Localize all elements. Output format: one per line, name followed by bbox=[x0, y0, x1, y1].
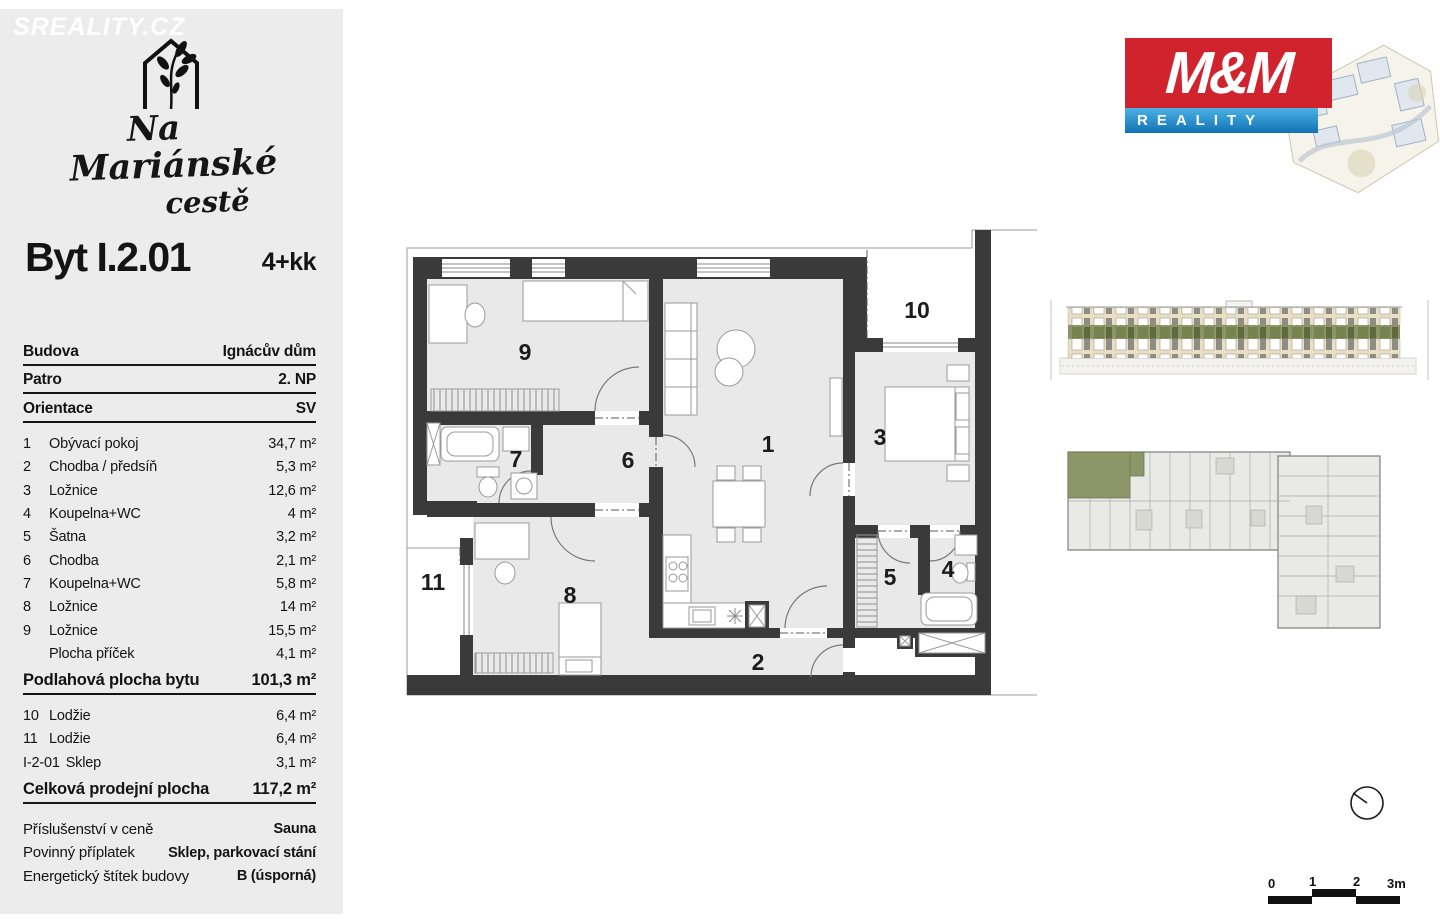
unit-header: Byt I.2.01 4+kk bbox=[25, 237, 316, 278]
bed-icon bbox=[523, 281, 648, 321]
room-name: Ložnice bbox=[49, 599, 280, 615]
mm-reality-logo: M&M REALITY bbox=[1125, 38, 1332, 133]
room-number: 6 bbox=[23, 553, 49, 569]
reality-logo-text: REALITY bbox=[1125, 112, 1264, 129]
detail-row: Energetický štítek budovyB (úsporná) bbox=[23, 865, 316, 889]
info-sidebar: SREALITY.CZ Na Mariánské cestě Byt I.2.0… bbox=[0, 9, 343, 914]
room-area: 5,3 m² bbox=[276, 459, 316, 475]
scale-tick-0: 0 bbox=[1268, 876, 1275, 891]
room-area: 2,1 m² bbox=[276, 553, 316, 569]
mm-logo-blue-bar: REALITY bbox=[1125, 108, 1318, 133]
info-label: Patro bbox=[23, 371, 62, 389]
project-logo-house-icon bbox=[129, 33, 213, 113]
scale-bar: 0 1 2 3m bbox=[1260, 874, 1412, 914]
room-label-11: 11 bbox=[421, 569, 446, 595]
info-row-building: Budova Ignácův dům bbox=[23, 337, 316, 366]
room-label-2: 2 bbox=[752, 649, 765, 675]
sink-icon bbox=[955, 535, 977, 555]
room-area: 5,8 m² bbox=[276, 576, 316, 592]
detail-row: Příslušenství v ceněSauna bbox=[23, 817, 316, 841]
bathtub-icon bbox=[441, 427, 499, 461]
total-label: Celková prodejní plocha bbox=[23, 780, 209, 799]
room-name: Ložnice bbox=[49, 623, 268, 639]
scale-tick-2: 2 bbox=[1353, 874, 1360, 889]
shaft-icon bbox=[897, 633, 913, 649]
tv-bench-icon bbox=[830, 378, 842, 436]
room-label-8: 8 bbox=[564, 582, 577, 608]
room-name: Plocha příček bbox=[49, 646, 276, 662]
total-row: Celková prodejní plocha 117,2 m² bbox=[23, 777, 316, 804]
room-name: Obývací pokoj bbox=[49, 436, 268, 452]
room-area: 4 m² bbox=[288, 506, 316, 522]
detail-label: Povinný příplatek bbox=[23, 844, 135, 861]
room-number: 7 bbox=[23, 576, 49, 592]
room-number: 8 bbox=[23, 599, 49, 615]
room-name: Koupelna+WC bbox=[49, 506, 288, 522]
info-row-floor: Patro 2. NP bbox=[23, 366, 316, 395]
room-list: 1Obývací pokoj34,7 m² 2Chodba / předsíň5… bbox=[23, 433, 316, 666]
room-number: 3 bbox=[23, 483, 49, 499]
room-name: Chodba / předsíň bbox=[49, 459, 276, 475]
room-row: 1Obývací pokoj34,7 m² bbox=[23, 433, 316, 456]
extra-row: 10Lodžie6,4 m² bbox=[23, 704, 316, 727]
unit-title: Byt I.2.01 bbox=[25, 237, 190, 278]
detail-value: Sklep, parkovací stání bbox=[168, 845, 316, 861]
room-label-10: 10 bbox=[904, 297, 930, 323]
info-value: SV bbox=[296, 400, 316, 418]
subtotal-value: 101,3 m² bbox=[252, 671, 316, 690]
detail-list: Příslušenství v ceněSauna Povinný přípla… bbox=[23, 817, 316, 888]
room-area: 6,4 m² bbox=[276, 708, 316, 724]
room-name: Ložnice bbox=[49, 483, 268, 499]
room-row: 8Ložnice14 m² bbox=[23, 596, 316, 619]
room-name: Sklep bbox=[66, 755, 276, 771]
info-row-orientation: Orientace SV bbox=[23, 394, 316, 423]
room-area: 4,1 m² bbox=[276, 646, 316, 662]
subtotal-row: Podlahová plocha bytu 101,3 m² bbox=[23, 668, 316, 695]
room-number: 10 bbox=[23, 708, 49, 724]
room-label-3: 3 bbox=[874, 424, 887, 450]
room-area: 14 m² bbox=[280, 599, 316, 615]
scale-tick-1: 1 bbox=[1309, 874, 1316, 889]
room-name: Šatna bbox=[49, 529, 276, 545]
room-number: 9 bbox=[23, 623, 49, 639]
room-label-7: 7 bbox=[510, 446, 523, 472]
room-number: 11 bbox=[23, 731, 49, 747]
info-value: 2. NP bbox=[278, 371, 316, 389]
shaft-icon bbox=[427, 423, 440, 465]
room-area: 3,2 m² bbox=[276, 529, 316, 545]
extra-row: I-2-01Sklep3,1 m² bbox=[23, 751, 316, 774]
room-name: Koupelna+WC bbox=[49, 576, 276, 592]
overview-floorplan bbox=[1066, 446, 1432, 668]
shelving-hatch bbox=[857, 535, 877, 627]
room-name: Lodžie bbox=[49, 731, 276, 747]
room-label-4: 4 bbox=[942, 556, 955, 582]
washing-machine-icon bbox=[511, 473, 537, 499]
sofa-icon bbox=[665, 303, 697, 415]
detail-label: Příslušenství v ceně bbox=[23, 821, 153, 838]
bathtub-icon bbox=[921, 593, 977, 625]
scale-tick-3m: 3m bbox=[1387, 876, 1406, 891]
room-area: 6,4 m² bbox=[276, 731, 316, 747]
room-name: Chodba bbox=[49, 553, 276, 569]
wardrobe-hatch bbox=[431, 389, 559, 411]
detail-row: Povinný příplatekSklep, parkovací stání bbox=[23, 841, 316, 865]
detail-label: Energetický štítek budovy bbox=[23, 868, 189, 885]
apartment-floorplan: 1 2 3 4 5 6 7 8 9 10 11 bbox=[383, 205, 1043, 710]
room-label-6: 6 bbox=[622, 447, 635, 473]
room-number: I-2-01 bbox=[23, 755, 60, 771]
shaft-icon bbox=[745, 601, 769, 631]
room-number: 2 bbox=[23, 459, 49, 475]
room-row: 4Koupelna+WC4 m² bbox=[23, 502, 316, 525]
unit-data-table: Budova Ignácův dům Patro 2. NP Orientace… bbox=[23, 337, 316, 888]
room-label-1: 1 bbox=[762, 431, 775, 457]
unit-layout: 4+kk bbox=[262, 250, 316, 275]
room-row: 2Chodba / předsíň5,3 m² bbox=[23, 456, 316, 479]
extra-row: 11Lodžie6,4 m² bbox=[23, 728, 316, 751]
room-area: 15,5 m² bbox=[268, 623, 316, 639]
room-area: 34,7 m² bbox=[268, 436, 316, 452]
room-row: 3Ložnice12,6 m² bbox=[23, 479, 316, 502]
info-label: Budova bbox=[23, 343, 79, 361]
room-number: 4 bbox=[23, 506, 49, 522]
room-row: 7Koupelna+WC5,8 m² bbox=[23, 572, 316, 595]
extras-list: 10Lodžie6,4 m² 11Lodžie6,4 m² I-2-01Skle… bbox=[23, 704, 316, 774]
mm-logo-text: M&M bbox=[1164, 43, 1293, 102]
room-row: 9Ložnice15,5 m² bbox=[23, 619, 316, 642]
room-name: Lodžie bbox=[49, 708, 276, 724]
room-area: 3,1 m² bbox=[276, 755, 316, 771]
toilet-icon bbox=[477, 467, 499, 497]
cellar-storage-icon bbox=[915, 629, 989, 657]
north-compass-icon bbox=[1345, 780, 1389, 824]
building-elevation bbox=[1048, 298, 1432, 386]
room-label-9: 9 bbox=[519, 339, 532, 365]
room-row: 6Chodba2,1 m² bbox=[23, 549, 316, 572]
wardrobe-hatch bbox=[475, 653, 553, 673]
room-row: 5Šatna3,2 m² bbox=[23, 526, 316, 549]
toilet-icon bbox=[952, 563, 975, 583]
info-label: Orientace bbox=[23, 400, 93, 418]
detail-value: Sauna bbox=[273, 821, 316, 837]
total-value: 117,2 m² bbox=[252, 780, 316, 799]
detail-value: B (úsporná) bbox=[237, 868, 316, 884]
subtotal-label: Podlahová plocha bytu bbox=[23, 671, 199, 690]
room-number: 1 bbox=[23, 436, 49, 452]
bed-icon bbox=[559, 603, 601, 675]
mm-logo-red-box: M&M bbox=[1125, 38, 1332, 108]
room-area: 12,6 m² bbox=[268, 483, 316, 499]
room-row: Plocha příček4,1 m² bbox=[23, 642, 316, 665]
room-number: 5 bbox=[23, 529, 49, 545]
room-label-5: 5 bbox=[884, 564, 897, 590]
info-value: Ignácův dům bbox=[223, 343, 316, 361]
